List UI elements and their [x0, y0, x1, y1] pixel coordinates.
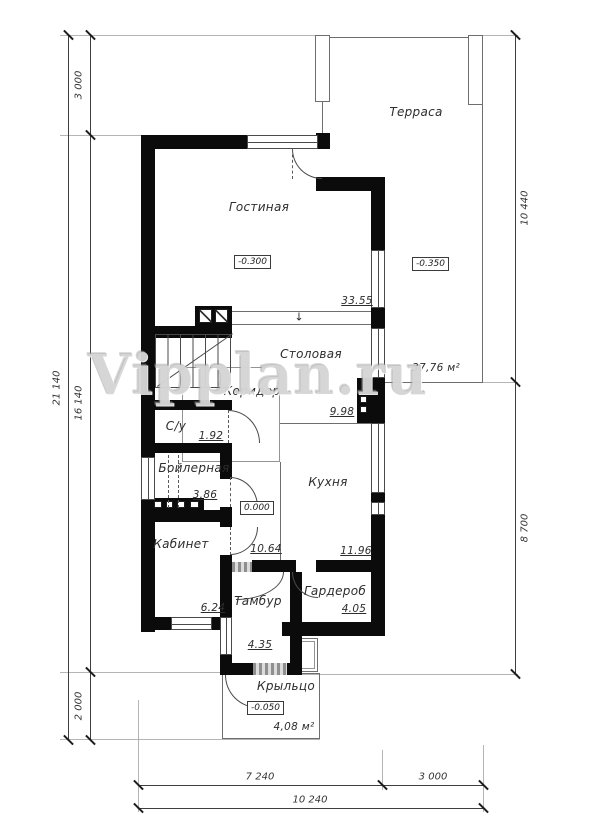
- dimension-line-right: [515, 35, 516, 674]
- tambour-entry-threshold: [232, 562, 252, 572]
- window-tambour-left: [220, 617, 232, 655]
- chimney-flue: [215, 309, 228, 323]
- extension-line: [483, 745, 484, 812]
- dim-label-bottom-total: 10 240: [293, 795, 328, 806]
- door-leaf: [228, 410, 229, 443]
- wall-office-bottom-left: [141, 617, 171, 630]
- area-label-porch: 4,08 м²: [274, 721, 315, 733]
- wall-wardrobe-top-right: [316, 560, 385, 572]
- dim-label-left-outer: 21 140: [52, 371, 63, 406]
- elevation-mark-porch: -0.050: [247, 701, 284, 715]
- room-label-porch: Крыльцо: [257, 679, 315, 693]
- extension-line: [483, 382, 518, 383]
- kitchen-boundary-line: [280, 423, 371, 424]
- boiler-appliance: [154, 501, 162, 508]
- wall-right-post: [371, 308, 385, 328]
- door-leaf: [292, 149, 293, 179]
- wall-terrace-door-post: [316, 133, 330, 149]
- wall-tambour-bottom-left: [220, 663, 253, 675]
- wall-upper-right: [316, 177, 385, 191]
- extension-line: [483, 35, 518, 36]
- dim-label-right-bottom: 8 700: [520, 514, 531, 543]
- wall-right-lower: [371, 515, 385, 636]
- door-leaf: [230, 477, 231, 507]
- elevation-mark-terrace: -0.350: [412, 257, 449, 271]
- dim-label-left-bottom: 2 000: [74, 692, 85, 721]
- elevation-mark-hall: 0.000: [240, 501, 274, 515]
- room-label-kitchen: Кухня: [308, 475, 347, 489]
- extension-line: [138, 700, 139, 812]
- wall-wc-bottom: [141, 443, 232, 453]
- room-label-living: Гостиная: [229, 200, 289, 214]
- extension-line: [60, 739, 320, 740]
- chimney-flue: [199, 309, 212, 323]
- floor-plan: 21 140 3 000 16 140 2 000 10 440 8 700 7…: [0, 0, 600, 834]
- wall-boiler-bottom: [141, 510, 232, 522]
- extension-line: [60, 672, 222, 673]
- terrace-pillar: [315, 35, 330, 102]
- area-label-tambour: 4.35: [248, 639, 273, 651]
- dimension-line-bottom-2: [138, 808, 483, 809]
- extension-line: [60, 135, 141, 136]
- area-label-boiler: 3.86: [193, 489, 218, 501]
- extension-line: [302, 674, 518, 675]
- area-label-wardrobe: 4.05: [342, 603, 367, 615]
- dim-label-bottom-right: 3 000: [419, 772, 448, 783]
- area-label-hall: 10.64: [250, 543, 282, 555]
- watermark: Vipplan.ru: [88, 342, 428, 408]
- area-label-wc: 1.92: [199, 430, 224, 442]
- dimension-line-left-outer: [68, 35, 69, 740]
- wall-top: [141, 135, 247, 149]
- terrace-top-line: [316, 37, 483, 38]
- porch-door-threshold: [253, 663, 287, 675]
- window-living-top: [247, 135, 318, 149]
- room-label-terrace: Терраса: [389, 105, 442, 119]
- dim-label-bottom-left: 7 240: [246, 772, 275, 783]
- extension-line: [60, 35, 322, 36]
- area-label-kitchen: 11.96: [340, 545, 372, 557]
- wall-wardrobe-bottom: [282, 622, 385, 636]
- dimension-line-bottom-1: [138, 785, 483, 786]
- dim-label-left-middle: 16 140: [74, 386, 85, 421]
- window-boiler-left: [141, 457, 155, 500]
- room-label-tambour: Тамбур: [234, 594, 282, 608]
- wall-tambour-bottom-right: [287, 663, 302, 675]
- wall-pier: [220, 507, 232, 527]
- dim-label-left-top: 3 000: [74, 71, 85, 100]
- dim-label-right-top: 10 440: [520, 191, 531, 226]
- area-label-office: 6.24: [201, 602, 226, 614]
- wall-right-living: [371, 191, 385, 250]
- room-label-wardrobe: Гардероб: [304, 584, 366, 598]
- floor-step-line: [228, 324, 371, 325]
- terrace-pillar: [468, 35, 483, 105]
- window-kitchen-right-1: [371, 423, 385, 493]
- door-leaf: [230, 527, 231, 555]
- room-label-boiler: Бойлерная: [158, 461, 229, 475]
- boiler-appliance: [190, 501, 199, 508]
- window-office-bottom: [171, 617, 212, 630]
- room-label-wc: С/у: [166, 419, 186, 433]
- wall-right-mullion: [371, 493, 385, 502]
- elevation-mark-living: -0.300: [234, 255, 271, 269]
- wall-wardrobe-top-left: [252, 560, 296, 572]
- room-label-office: Кабинет: [153, 537, 208, 551]
- step-direction-arrow-icon: ↓: [294, 311, 303, 324]
- door-arc-terrace: [292, 149, 322, 179]
- window-kitchen-right-2: [371, 502, 385, 515]
- area-label-living: 33.55: [341, 295, 373, 307]
